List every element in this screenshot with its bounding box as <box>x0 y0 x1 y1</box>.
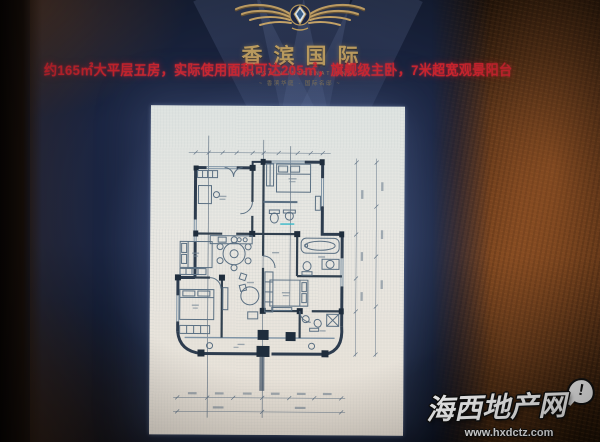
floorplan-paper <box>149 105 405 436</box>
watermark-url: www.hxdctz.com <box>439 427 579 439</box>
bedroom-top-right <box>263 164 321 268</box>
site-watermark: ! 海西地产网 www.hxdctz.com <box>421 382 597 440</box>
bedroom-top-left <box>197 168 252 214</box>
winged-emblem-icon <box>230 2 370 34</box>
watermark-site-name: 海西地产网 <box>420 383 571 428</box>
brand-tagline: ~ 香滨华庭 · 国际名邸 ~ <box>170 79 430 87</box>
floorplan-drawing <box>149 105 405 436</box>
bedroom-lower-left <box>180 277 221 333</box>
living-area <box>223 272 273 319</box>
bathroom-lower <box>302 314 339 331</box>
dimension-lines <box>173 150 383 414</box>
slogan-banner: 约165㎡大平层五房，实际使用面积可达205㎡，旗舰级主卧，7米超宽观景阳台 <box>44 60 528 80</box>
bathroom-upper <box>263 202 297 224</box>
